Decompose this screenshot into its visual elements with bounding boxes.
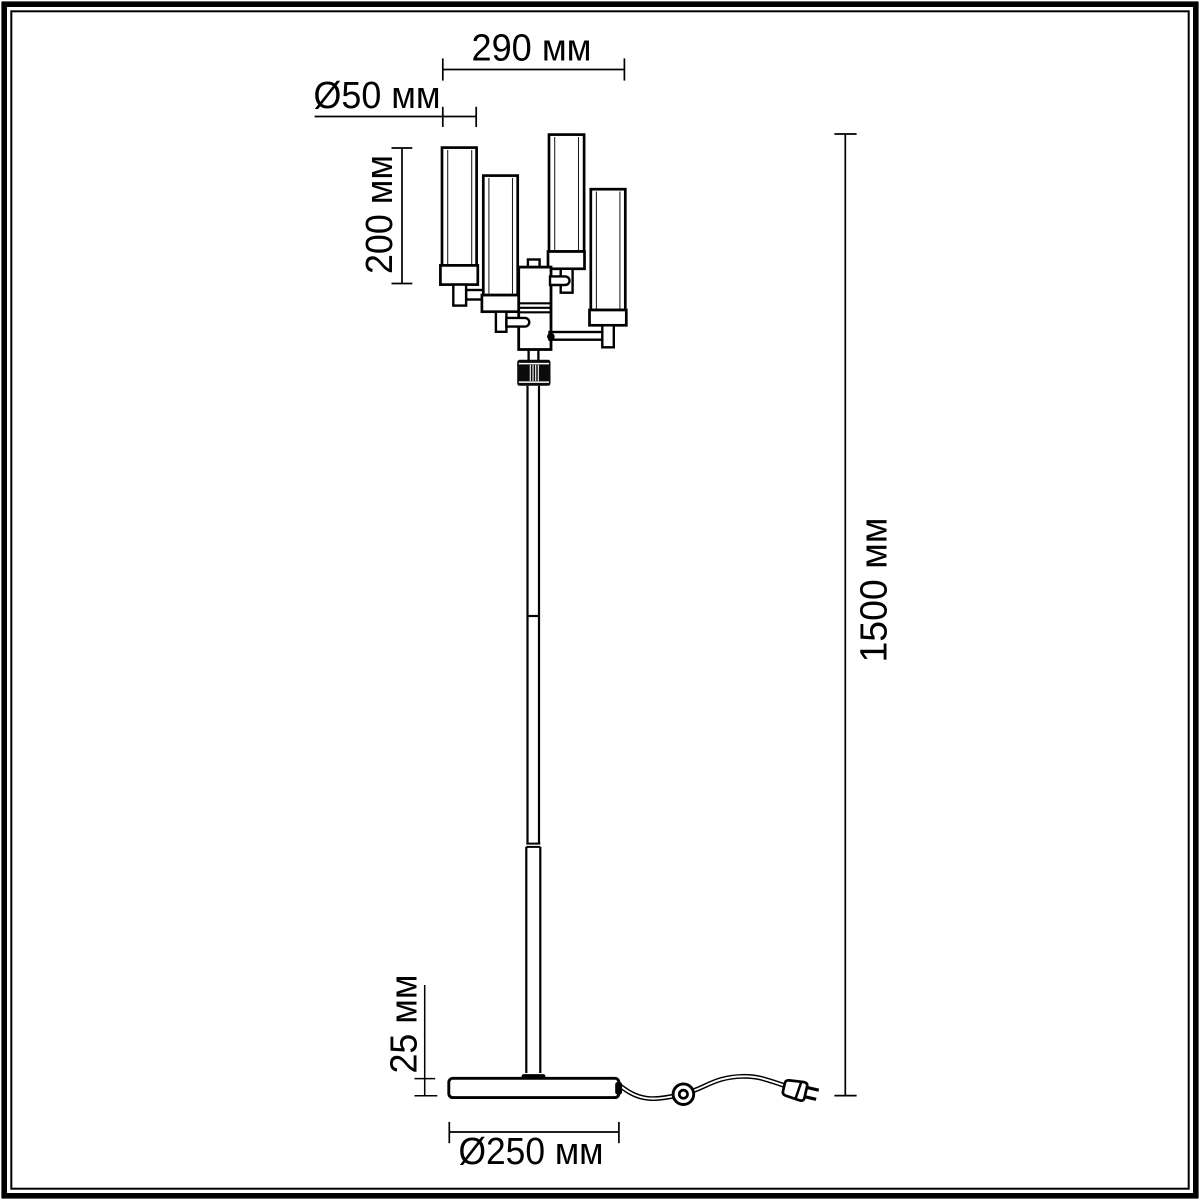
svg-text:25 мм: 25 мм [384, 975, 426, 1074]
svg-text:290 мм: 290 мм [472, 28, 592, 70]
svg-text:Ø250 мм: Ø250 мм [459, 1131, 604, 1173]
svg-text:Ø50 мм: Ø50 мм [314, 75, 441, 117]
svg-text:1500 мм: 1500 мм [854, 518, 896, 663]
svg-text:200 мм: 200 мм [359, 155, 401, 274]
